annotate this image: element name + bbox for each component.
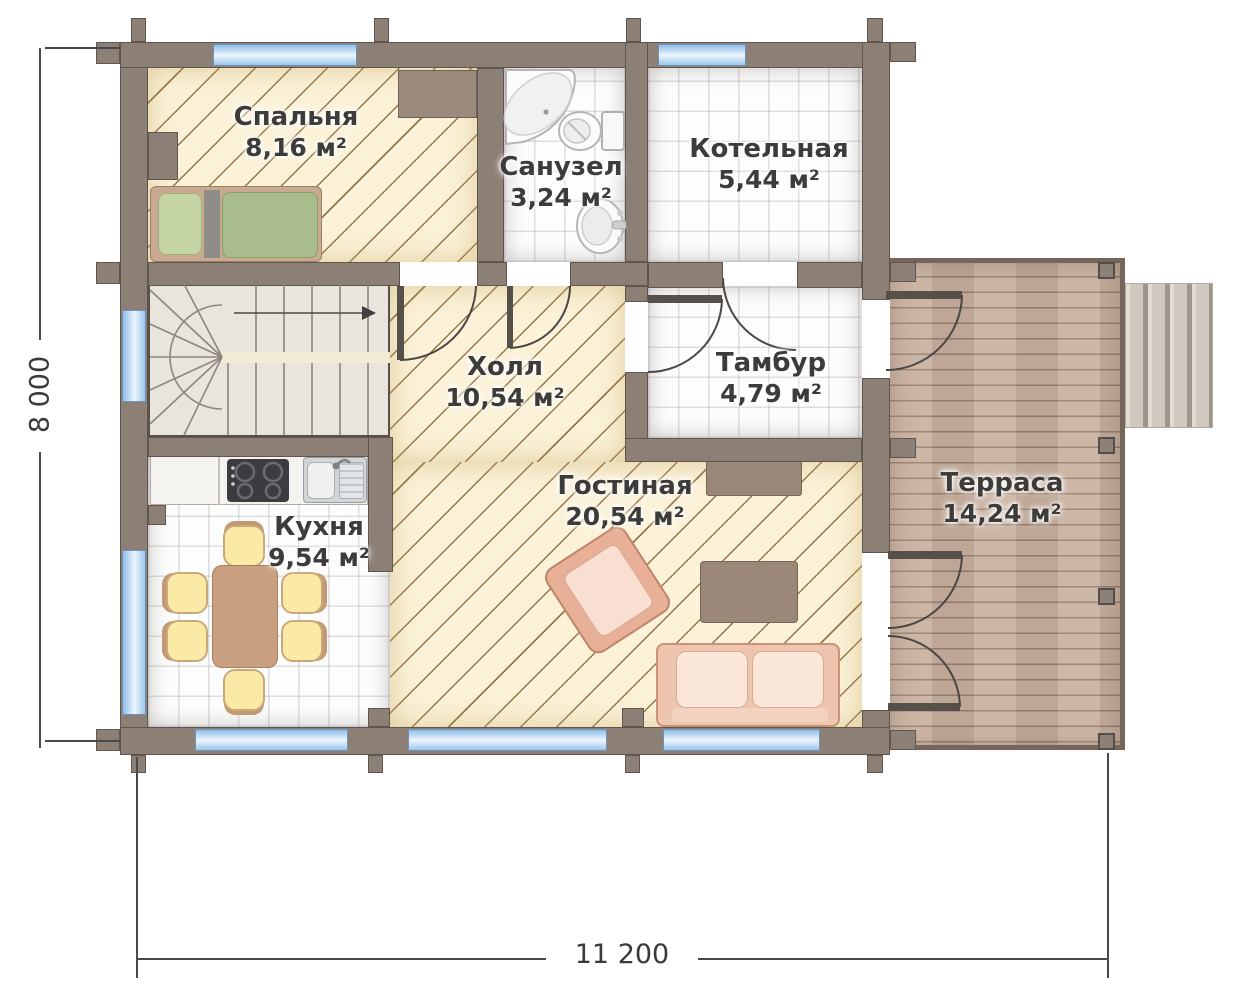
log-end [890, 262, 916, 282]
wall-door-stub [477, 262, 507, 286]
wall-bedroom-south [148, 262, 400, 286]
room-name: Спальня [186, 102, 406, 133]
coffee-table [700, 561, 798, 623]
chair [281, 572, 323, 614]
chair [281, 620, 323, 662]
sofa-seat-front [672, 708, 828, 722]
dimension-extension [45, 47, 120, 49]
wall-vestibule-south [625, 438, 862, 462]
kitchen-sink-bowl [307, 462, 335, 499]
log-end [867, 755, 883, 773]
bed-mattress [222, 192, 318, 258]
window [122, 550, 146, 715]
stove [227, 459, 289, 502]
sofa-cushion [752, 651, 824, 708]
room-area: 9,54 м² [209, 543, 429, 573]
room-name: Гостиная [515, 471, 735, 502]
room-area: 5,44 м² [659, 165, 879, 195]
room-label-bedroom: Спальня 8,16 м² [186, 102, 406, 162]
dining-table [212, 565, 278, 668]
window [408, 729, 607, 751]
chair [166, 620, 208, 662]
room-name: Холл [395, 352, 615, 383]
room-name: Санузел [451, 152, 671, 183]
room-label-kitchen: Кухня 9,54 м² [209, 512, 429, 572]
room-name: Тамбур [661, 348, 881, 379]
kitchen-sink-drainboard [339, 462, 364, 499]
terrace-steps [1125, 283, 1213, 428]
log-end [890, 438, 916, 458]
terrace-post [1098, 733, 1115, 750]
log-end [96, 262, 120, 284]
terrace-post [1098, 588, 1115, 605]
room-label-living: Гостиная 20,54 м² [515, 471, 735, 531]
room-area: 14,24 м² [892, 499, 1112, 529]
room-area: 3,24 м² [451, 183, 671, 213]
dimension-line-horizontal [136, 958, 546, 960]
wall-boiler-south [648, 262, 723, 288]
armchair-cushion [561, 542, 655, 639]
log-end [867, 18, 883, 42]
log-end [368, 755, 383, 773]
room-area: 8,16 м² [186, 133, 406, 163]
window [195, 729, 348, 751]
log-end [148, 132, 178, 180]
terrace-post [1098, 437, 1115, 454]
dimension-extension [1107, 753, 1109, 978]
kitchen-cabinet-divider [218, 455, 220, 505]
terrace-edge-right [1120, 258, 1125, 750]
room-label-terrace: Терраса 14,24 м² [892, 468, 1112, 528]
dimension-extension [45, 740, 120, 742]
log-end [368, 708, 390, 727]
room-area: 4,79 м² [661, 379, 881, 409]
room-label-bathroom: Санузел 3,24 м² [451, 152, 671, 212]
terrace-edge-bottom [890, 745, 1125, 750]
room-area: 20,54 м² [515, 502, 735, 532]
sofa-cushion [676, 651, 748, 708]
window [658, 44, 746, 66]
bed-headboard [204, 190, 220, 258]
wall-vestibule-west [625, 286, 648, 302]
window [122, 310, 146, 402]
log-end [131, 18, 146, 42]
dimension-label-height: 8 000 [25, 325, 56, 465]
log-end [374, 18, 389, 42]
terrace-post [1098, 262, 1115, 279]
terrace-edge-top [890, 258, 1125, 263]
log-end [625, 755, 640, 773]
room-label-vestibule: Тамбур 4,79 м² [661, 348, 881, 408]
floor-plan: Спальня 8,16 м² Санузел 3,24 м² Котельна… [0, 0, 1250, 1000]
room-label-boiler: Котельная 5,44 м² [659, 134, 879, 194]
room-name: Кухня [209, 512, 429, 543]
log-end [96, 42, 120, 64]
log-end [148, 505, 166, 525]
wall-hall-north [570, 262, 648, 286]
log-end [890, 42, 916, 62]
wall-boiler-south [797, 262, 862, 288]
log-end [890, 730, 916, 750]
log-end [626, 18, 641, 42]
wardrobe [398, 70, 477, 118]
bed-pillow [158, 193, 202, 255]
log-end [622, 708, 644, 727]
dimension-line-vertical [39, 48, 41, 340]
dimension-label-width: 11 200 [542, 939, 702, 970]
sofa [656, 643, 840, 727]
chair [223, 669, 265, 711]
window [663, 729, 820, 751]
room-label-hall: Холл 10,54 м² [395, 352, 615, 412]
dimension-extension [136, 757, 138, 978]
room-area: 10,54 м² [395, 383, 615, 413]
dimension-line-horizontal [698, 958, 1108, 960]
room-name: Терраса [892, 468, 1112, 499]
log-end [131, 755, 146, 773]
dimension-line-vertical [39, 452, 41, 748]
window [213, 44, 357, 66]
chair [166, 572, 208, 614]
staircase-landing-strip [222, 352, 390, 363]
wall-stairs-south [148, 437, 390, 457]
room-name: Котельная [659, 134, 879, 165]
